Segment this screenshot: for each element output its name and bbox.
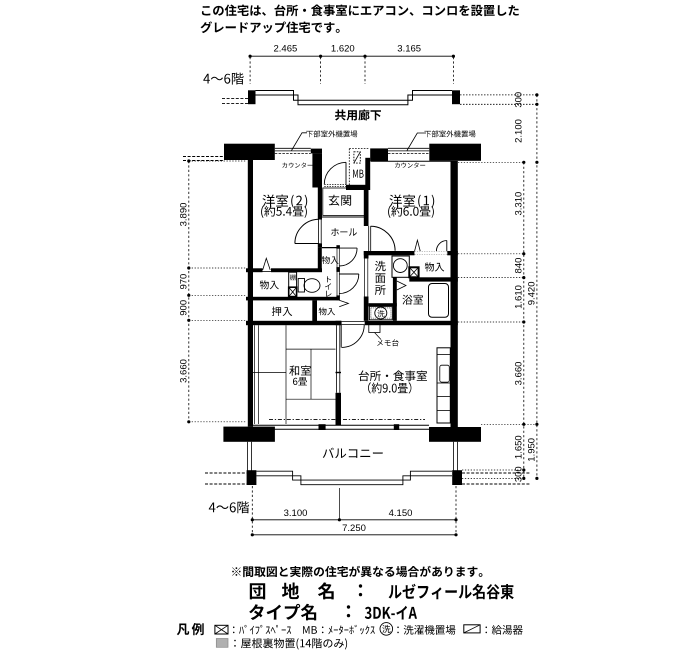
svg-text:3.660: 3.660 [513,362,524,386]
svg-text:1.650: 1.650 [513,435,524,459]
svg-text:3.165: 3.165 [397,44,421,55]
svg-text:3.100: 3.100 [284,508,308,519]
svg-text:300: 300 [513,92,524,108]
svg-text:4.150: 4.150 [389,508,413,519]
svg-text:1.620: 1.620 [331,44,355,55]
svg-text:3.310: 3.310 [513,192,524,216]
svg-text:840: 840 [513,258,524,274]
svg-text:2.100: 2.100 [513,119,524,143]
svg-text:3.890: 3.890 [179,203,190,227]
svg-text:7.250: 7.250 [342,523,366,534]
svg-text:9.420: 9.420 [527,282,538,306]
svg-text:1.610: 1.610 [513,285,524,309]
svg-text:1.950: 1.950 [527,438,538,462]
svg-text:300: 300 [513,466,524,482]
svg-text:970: 970 [179,274,190,290]
svg-text:3.660: 3.660 [179,359,190,383]
svg-text:2.465: 2.465 [274,44,298,55]
svg-text:900: 900 [179,300,190,316]
